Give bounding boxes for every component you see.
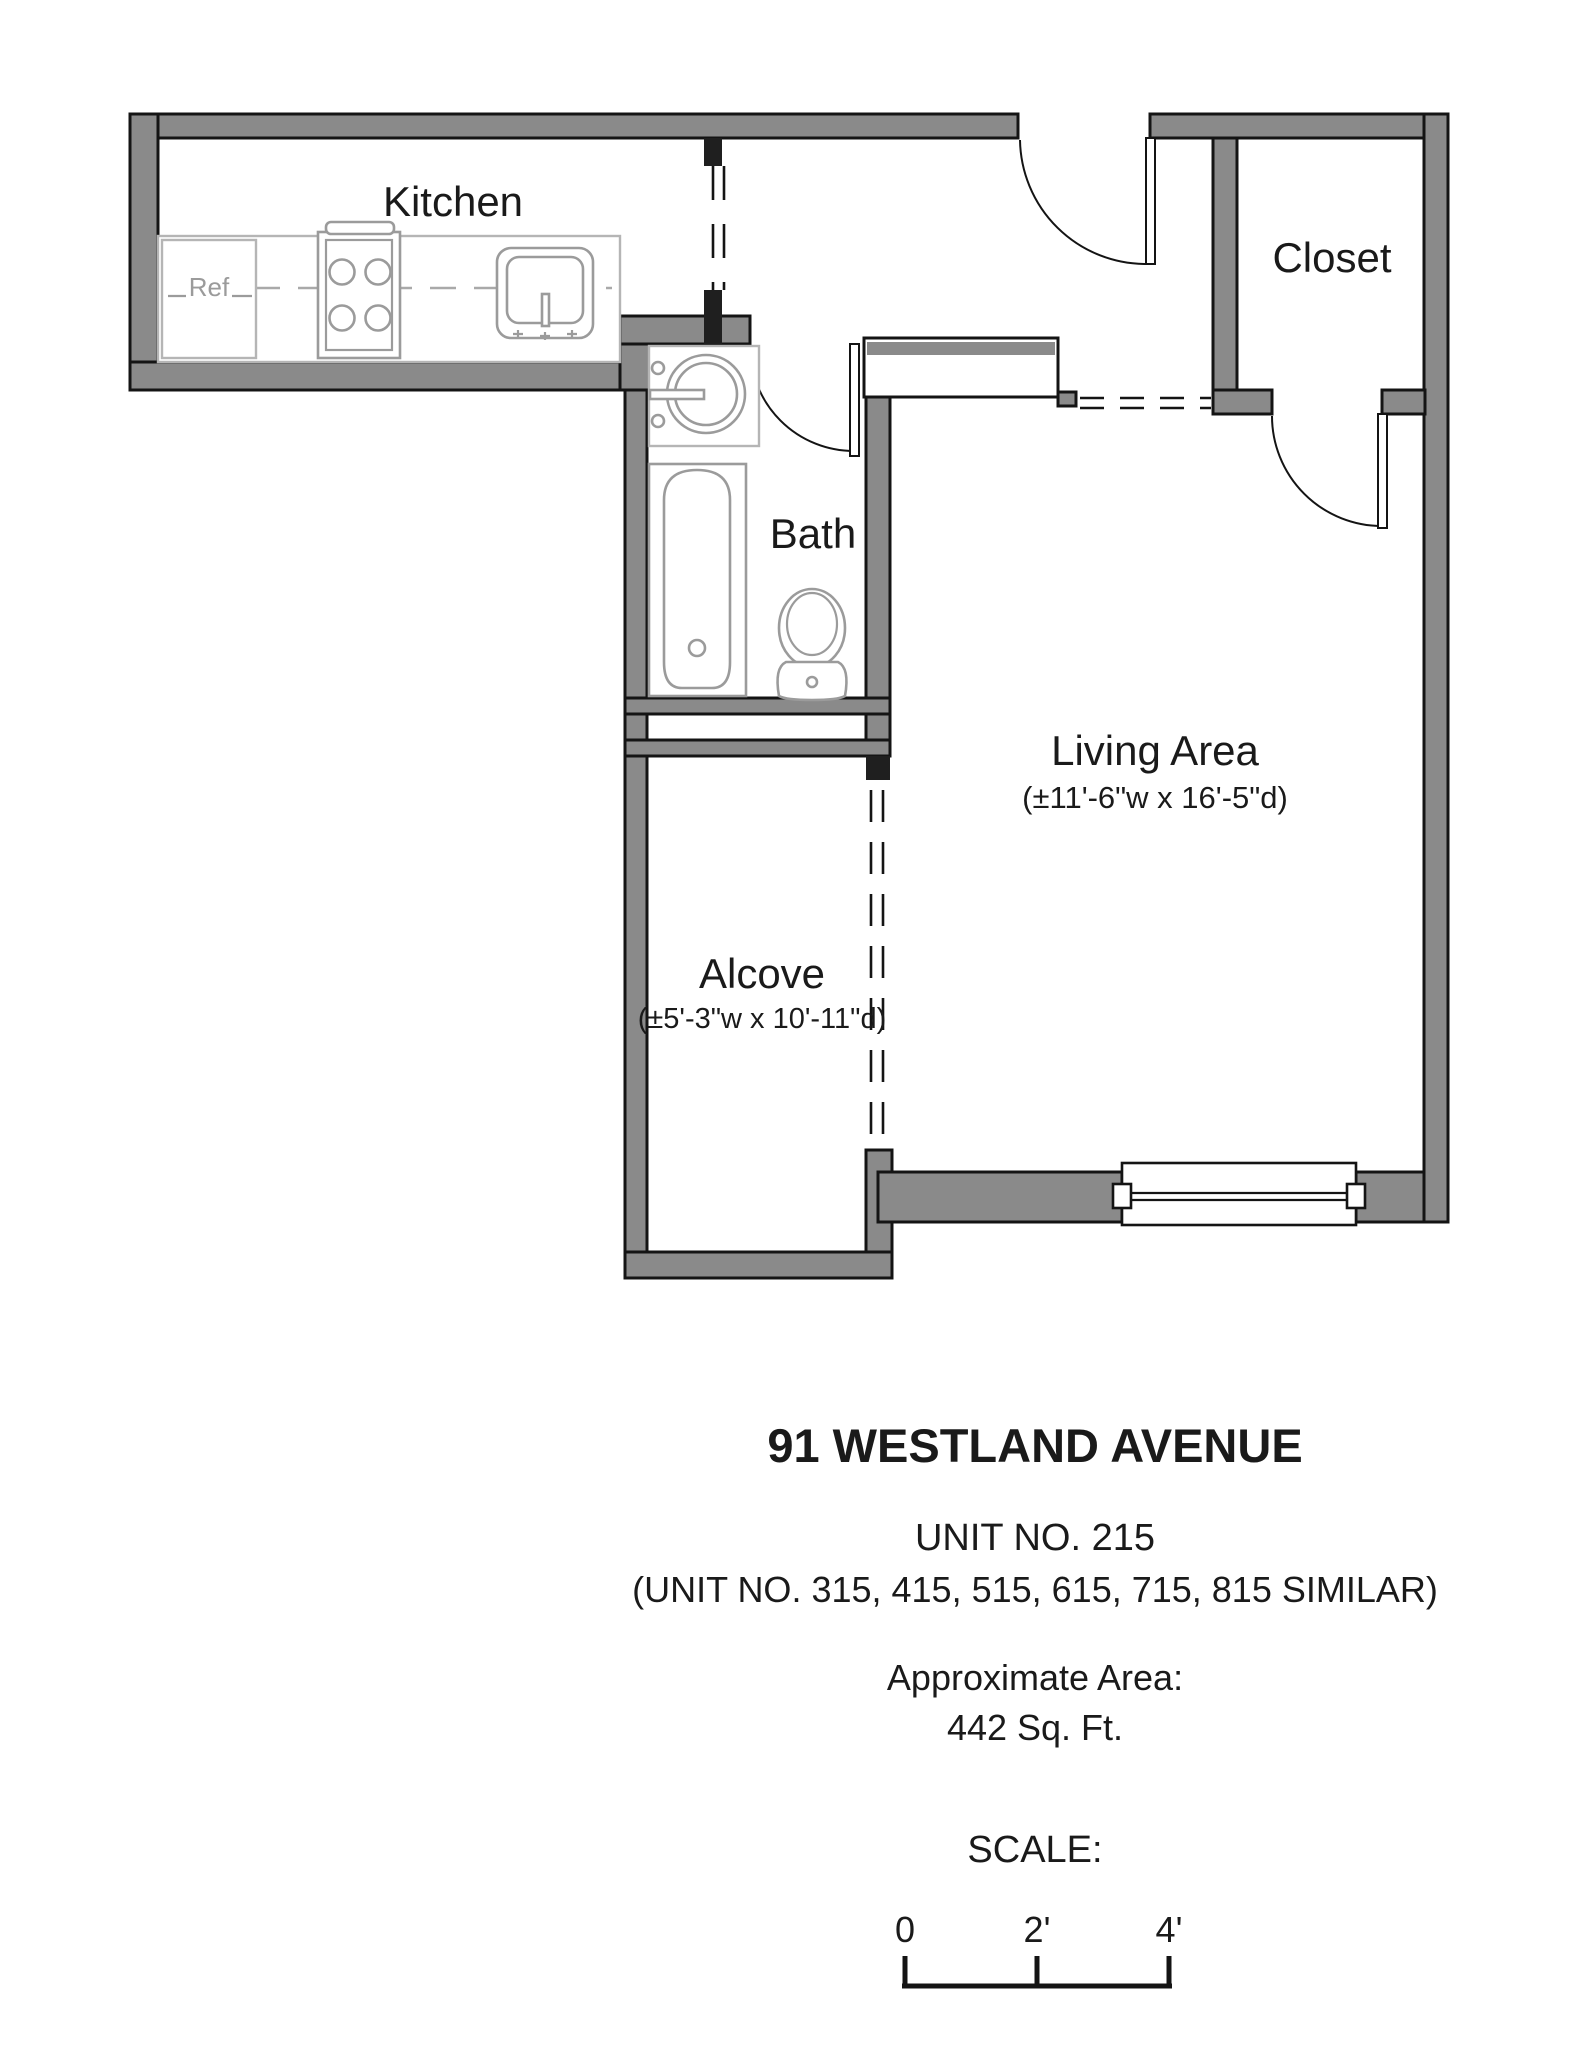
stove-burner [366,260,391,285]
area-label: Approximate Area: [887,1657,1183,1698]
bath-top-wall [620,316,750,344]
closet-bottom-stub-left [1213,390,1272,414]
hall-divider-band [867,342,1055,355]
window-jamb-left [1113,1184,1131,1208]
toilet-icon [778,589,847,700]
similar-units: (UNIT NO. 315, 415, 515, 615, 715, 815 S… [632,1569,1438,1610]
bath-alcove-left-wall [625,390,647,1278]
bathtub-drain [689,640,705,656]
living-area-label: Living Area [1051,727,1259,774]
stove-body [318,232,400,358]
bath-door-swing-arc [750,347,854,451]
scale-bar: 0 2' 4' [895,1909,1182,1986]
alcove-top-wall [625,740,890,756]
right-wall [1424,114,1448,1222]
living-bottom-wall-left [878,1172,1122,1222]
bath-sink-faucet [650,390,704,399]
closet-bottom-stub-right [1382,390,1425,414]
kitchen-sink-drain [542,294,549,326]
area-value: 442 Sq. Ft. [947,1707,1123,1748]
scale-bar-ticks [905,1956,1169,1986]
bath-sink-tap [652,415,664,427]
kitchen-opening-top-cap [704,138,722,166]
refrigerator-label: Ref [189,272,230,302]
stove-icon [318,222,400,358]
hall-divider-end-tab [1058,392,1076,406]
toilet-flush-button [807,677,817,687]
stove-burner [330,306,355,331]
alcove-bottom-wall [625,1252,892,1278]
title-block: 91 WESTLAND AVENUE UNIT NO. 215 (UNIT NO… [632,1419,1438,1986]
kitchen-bottom-wall [130,362,662,390]
scale-tick-0: 0 [895,1909,915,1950]
address-title: 91 WESTLAND AVENUE [767,1419,1302,1472]
top-wall-left [130,114,1018,138]
floorplan-drawing: Kitchen Ref Bath Closet Living Area (±11… [0,0,1582,2048]
alcove-label: Alcove [699,950,825,997]
living-window [1113,1163,1365,1225]
floorplan-page: Kitchen Ref Bath Closet Living Area (±11… [0,0,1582,2048]
living-area-dimensions: (±11'-6"w x 16'-5"d) [1022,780,1288,815]
kitchen-opening-bottom-cap [704,290,722,344]
scale-label: SCALE: [967,1829,1102,1871]
alcove-opening-top-cap [866,756,890,780]
bathtub-icon [649,464,746,696]
kitchen-left-wall [130,114,158,390]
window-jamb-right [1347,1184,1365,1208]
bath-label: Bath [770,510,856,557]
closet-left-wall [1213,138,1237,414]
bath-sink-tap [652,362,664,374]
entry-door-swing-arc [1020,140,1146,264]
bath-door-leaf [850,344,859,456]
unit-number: UNIT NO. 215 [915,1517,1155,1559]
stove-burner [330,260,355,285]
closet-door-leaf [1378,414,1387,528]
closet-door-swing-arc [1272,416,1382,526]
scale-tick-2ft: 2' [1024,1909,1051,1950]
scale-tick-4ft: 4' [1156,1909,1183,1950]
kitchen-label: Kitchen [383,178,523,225]
bath-bottom-wall [625,698,890,714]
bath-sink-icon [649,346,759,446]
top-wall-right [1150,114,1448,138]
closet-label: Closet [1272,234,1391,281]
alcove-dimensions: (±5'-3"w x 10'-11"d) [638,1003,887,1035]
doors [750,138,1387,528]
stove-burner [366,306,391,331]
kitchen-sink-icon [497,248,593,340]
entry-door-leaf [1146,138,1155,264]
